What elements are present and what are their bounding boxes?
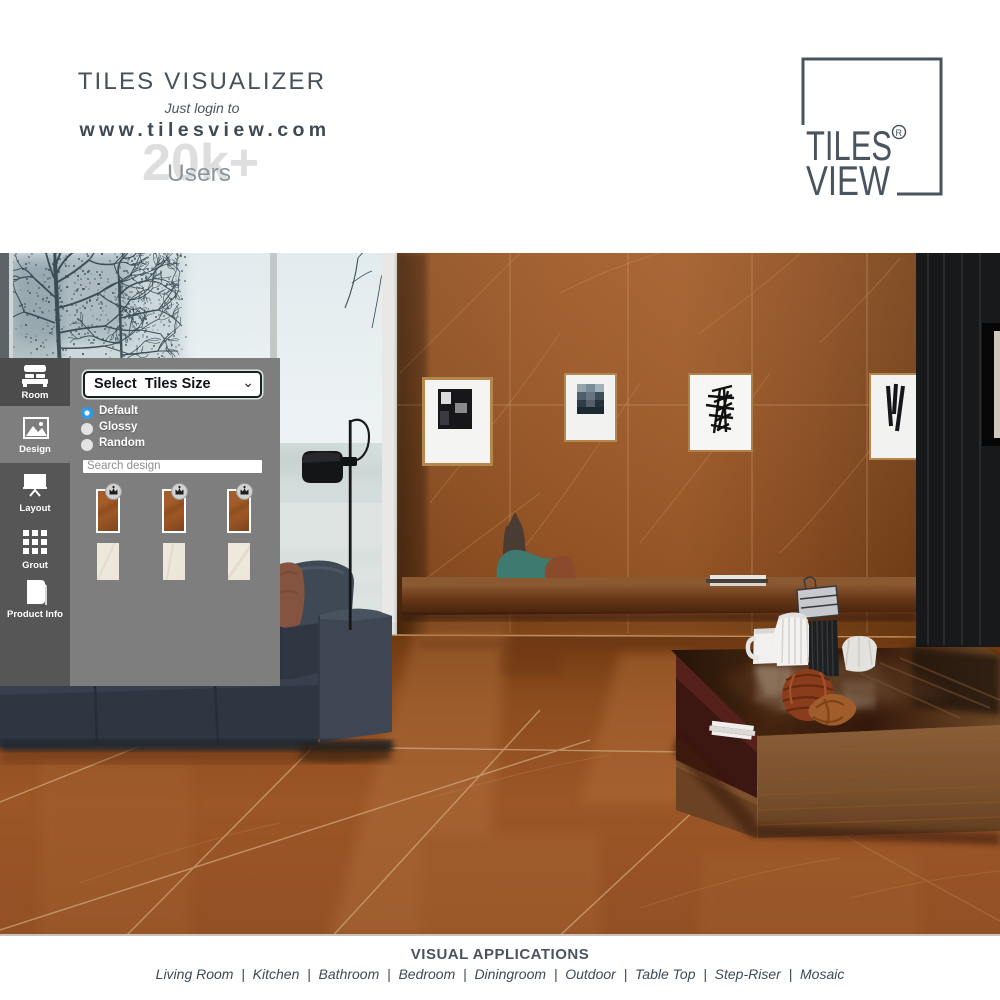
svg-text:VIEW: VIEW [806,157,890,204]
svg-text:R: R [896,128,903,138]
